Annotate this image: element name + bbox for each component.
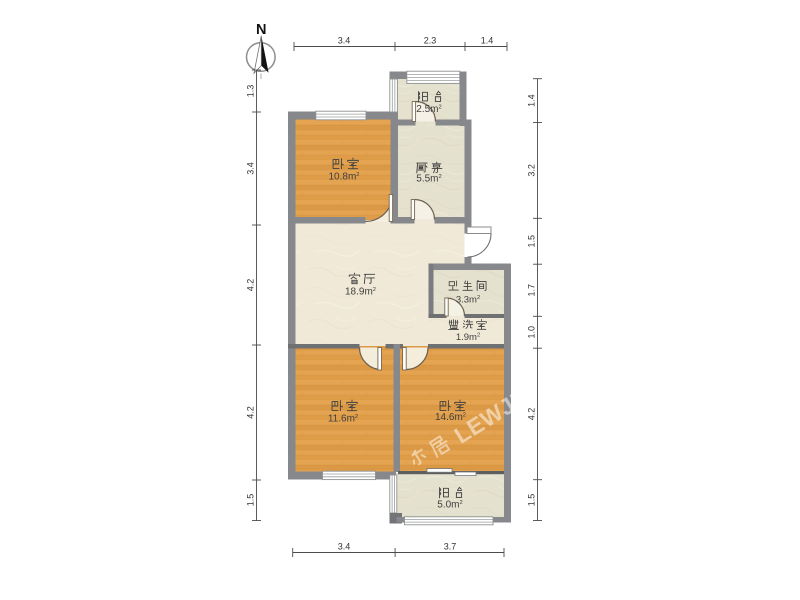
svg-text:1.4: 1.4 — [481, 36, 494, 46]
svg-text:3.4: 3.4 — [338, 542, 351, 552]
svg-text:N: N — [256, 22, 266, 38]
svg-text:2.3: 2.3 — [424, 36, 437, 46]
svg-text:4.2: 4.2 — [246, 406, 256, 419]
svg-text:10.8m2: 10.8m2 — [328, 172, 359, 183]
svg-text:1.9m2: 1.9m2 — [456, 332, 480, 343]
svg-text:3.3m2: 3.3m2 — [456, 295, 480, 306]
svg-text:3.4: 3.4 — [246, 162, 256, 175]
svg-text:11.6m2: 11.6m2 — [328, 414, 358, 425]
svg-text:2.5m2: 2.5m2 — [416, 104, 441, 115]
svg-text:3.4: 3.4 — [338, 36, 351, 46]
svg-text:5.0m2: 5.0m2 — [437, 500, 462, 511]
svg-text:1.5: 1.5 — [246, 494, 256, 507]
svg-text:4.2: 4.2 — [527, 408, 537, 421]
svg-text:4.2: 4.2 — [246, 279, 256, 292]
svg-text:3.7: 3.7 — [444, 542, 457, 552]
svg-text:1.0: 1.0 — [527, 326, 537, 339]
svg-text:1.3: 1.3 — [246, 85, 256, 98]
svg-text:18.9m2: 18.9m2 — [345, 287, 376, 298]
svg-text:3.2: 3.2 — [527, 164, 537, 177]
svg-text:1.7: 1.7 — [527, 284, 537, 297]
svg-text:1.4: 1.4 — [527, 94, 537, 107]
svg-text:1.5: 1.5 — [527, 235, 537, 248]
svg-text:1.5: 1.5 — [527, 494, 537, 507]
svg-text:5.5m2: 5.5m2 — [416, 174, 441, 185]
